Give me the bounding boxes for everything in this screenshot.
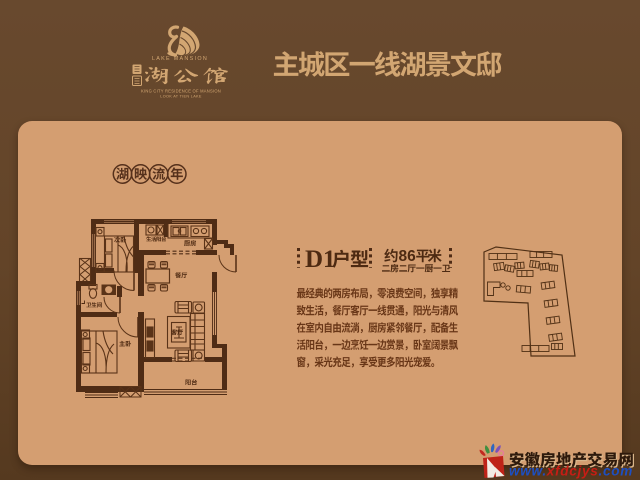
svg-text:www.xfdcjys.com: www.xfdcjys.com [509, 464, 633, 479]
